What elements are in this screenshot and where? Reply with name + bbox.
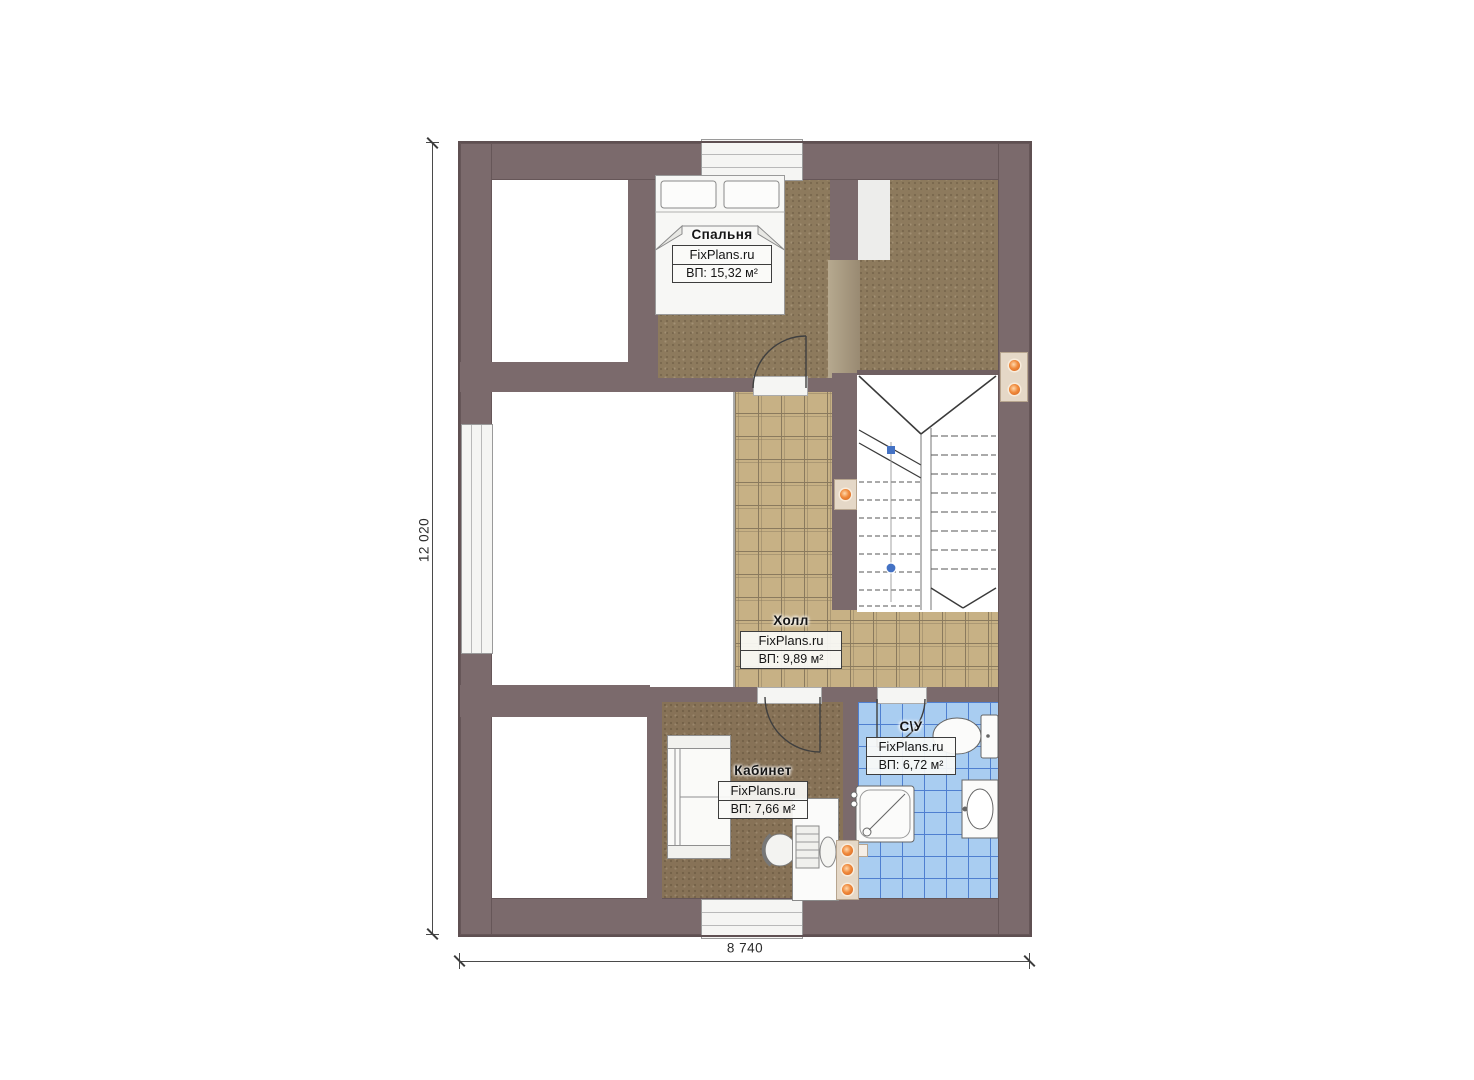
light-dot-icon (842, 864, 853, 875)
watermark: FixPlans.ru (867, 738, 955, 756)
stair-marker-dot (886, 563, 896, 573)
pillow (724, 181, 779, 208)
sink (962, 780, 998, 838)
hall-area: ВП: 9,89 м² (741, 650, 841, 668)
wall (650, 687, 757, 702)
watermark: FixPlans.ru (719, 782, 807, 800)
wall-outer-right (998, 143, 1030, 935)
wall-chip (858, 844, 868, 857)
ceiling-slope-strip (828, 260, 860, 378)
window-left (461, 424, 493, 654)
light-dot-icon (840, 489, 851, 500)
wall (460, 685, 650, 717)
dimension-height-value: 12 020 (417, 518, 432, 562)
floor-plan-canvas: Спальня FixPlans.ru ВП: 15,32 м² Холл Fi… (0, 0, 1474, 1080)
wall (460, 362, 658, 392)
light-panel-bath-wall (836, 840, 859, 900)
bathroom-name: С\У (866, 719, 956, 734)
wall (647, 702, 662, 900)
light-panel-right-wall (1000, 352, 1028, 402)
staircase (857, 370, 998, 612)
hall-label: Холл FixPlans.ru ВП: 9,89 м² (740, 613, 842, 669)
stairs-top-edge (857, 370, 998, 375)
office-door-sill (757, 687, 822, 704)
bedroom-name: Спальня (672, 227, 772, 242)
office-area: ВП: 7,66 м² (719, 800, 807, 818)
shower (851, 786, 914, 842)
bathroom-label: С\У FixPlans.ru ВП: 6,72 м² (866, 719, 956, 775)
bedroom-label: Спальня FixPlans.ru ВП: 15,32 м² (672, 227, 772, 283)
wall (658, 378, 753, 392)
window-bottom (701, 899, 803, 939)
stair-marker-square (887, 446, 895, 454)
watermark: FixPlans.ru (741, 632, 841, 650)
light-dot-icon (1009, 360, 1020, 371)
hall-name: Холл (740, 613, 842, 628)
light-dot-icon (1009, 384, 1020, 395)
bathroom-area: ВП: 6,72 м² (867, 756, 955, 774)
bedroom-door-sill (753, 376, 808, 396)
dimension-width-value: 8 740 (727, 941, 763, 956)
light-panel-stair-wall (834, 479, 857, 510)
hall-boundary-line (733, 392, 735, 687)
pillow (661, 181, 716, 208)
wall (830, 180, 858, 260)
office-name: Кабинет (718, 763, 808, 778)
watermark: FixPlans.ru (673, 246, 771, 264)
closet-niche (858, 180, 890, 260)
light-dot-icon (842, 845, 853, 856)
light-dot-icon (842, 884, 853, 895)
bedroom-area: ВП: 15,32 м² (673, 264, 771, 282)
office-label: Кабинет FixPlans.ru ВП: 7,66 м² (718, 763, 808, 819)
